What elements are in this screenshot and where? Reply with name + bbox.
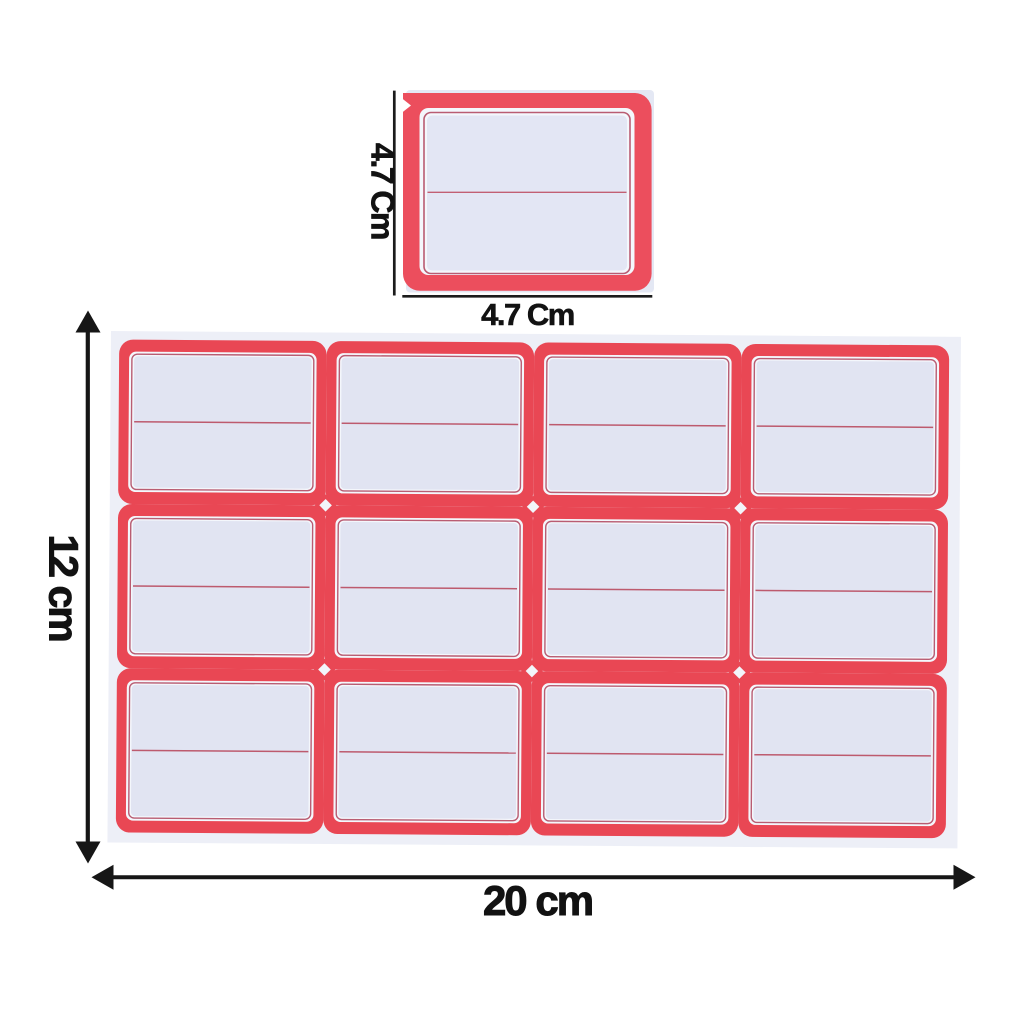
svg-text:4.7 Cm: 4.7 Cm (365, 143, 401, 239)
svg-text:20 cm: 20 cm (483, 877, 592, 924)
svg-text:12 cm: 12 cm (41, 534, 87, 640)
svg-text:4.7 Cm: 4.7 Cm (481, 297, 574, 332)
